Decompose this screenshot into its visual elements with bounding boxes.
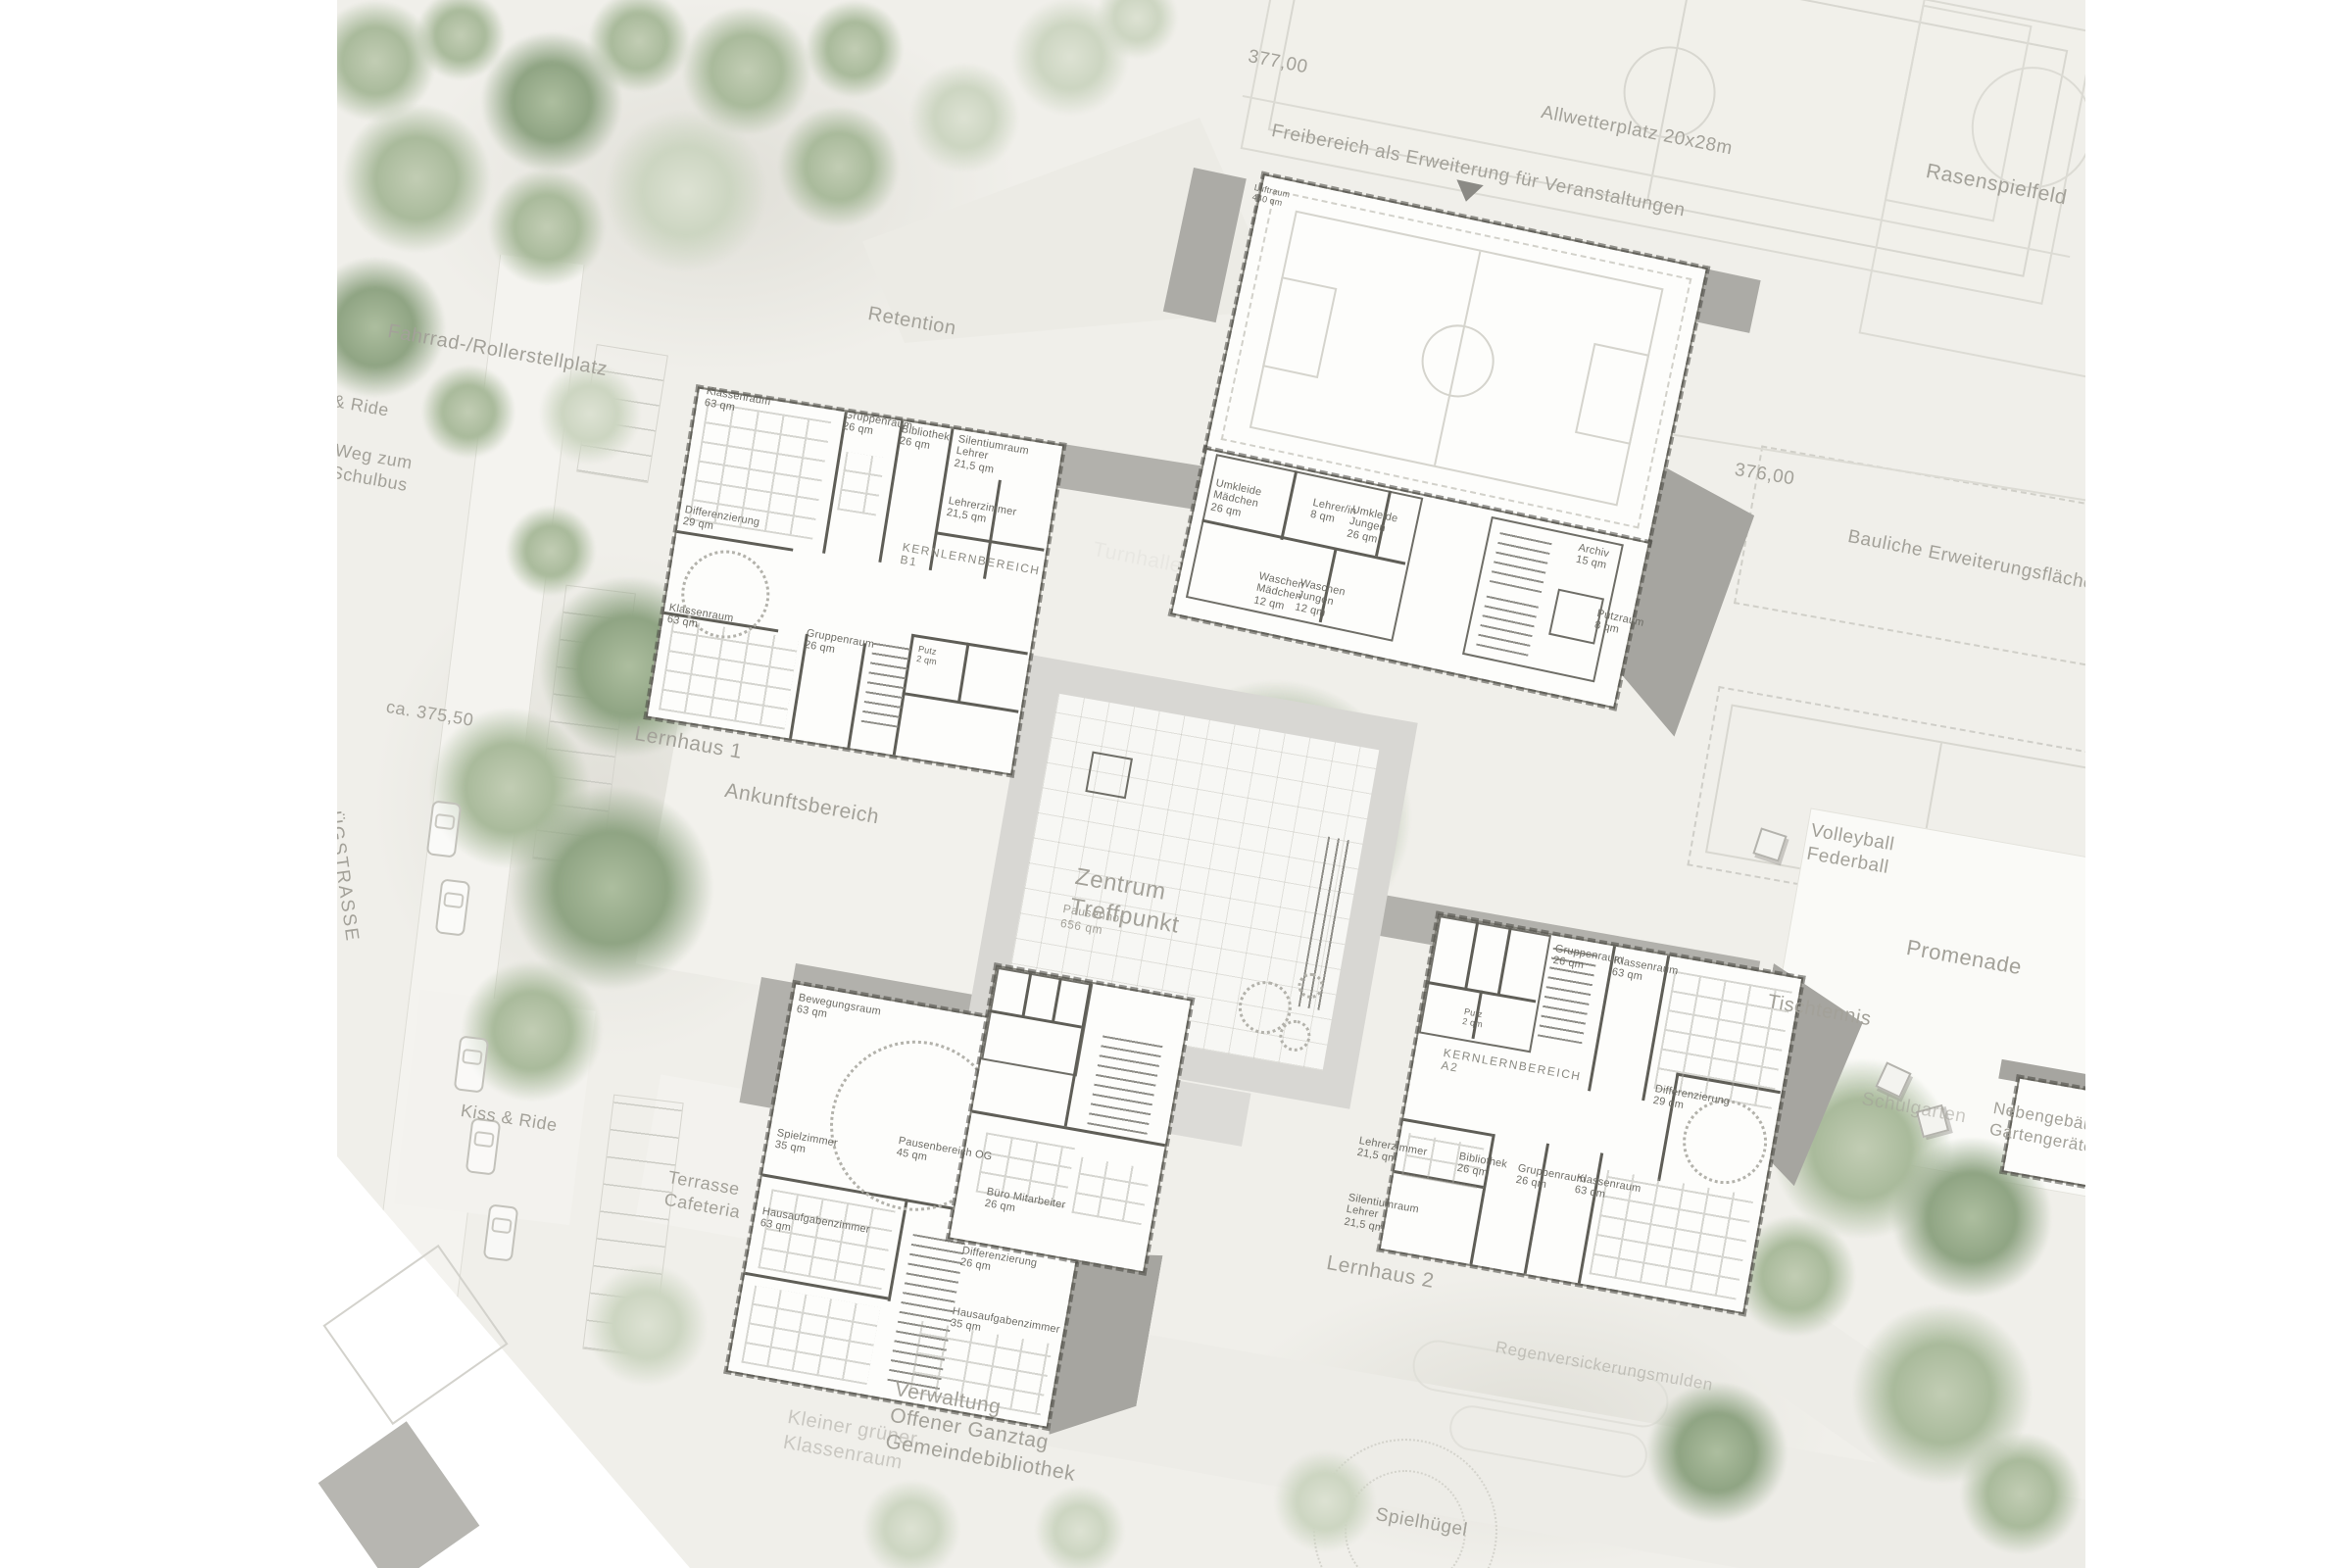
court-center-circle: [1415, 318, 1501, 404]
furniture-desks: [741, 1286, 880, 1385]
tree-canopy: [1274, 1450, 1376, 1552]
furniture-desks: [837, 452, 885, 516]
tree-canopy: [909, 63, 1019, 172]
tree-canopy: [806, 0, 904, 98]
tree-canopy: [1646, 1382, 1788, 1523]
tree-canopy: [510, 786, 713, 990]
site-plan-canvas: Fahrrad-/RollerstellplatzRetention377,00…: [0, 0, 2352, 1568]
tree-canopy: [778, 106, 900, 227]
tree-canopy: [606, 111, 766, 271]
room-label: Putz 2 qm: [1461, 1006, 1485, 1029]
tree-canopy: [506, 506, 596, 596]
tree-canopy: [1960, 1433, 2082, 1554]
page-margin-left: [0, 0, 337, 1568]
basketball-court: [1249, 211, 1664, 507]
page-margin-right: [2085, 0, 2352, 1568]
tree-canopy: [488, 169, 606, 286]
furniture-desks: [1071, 1157, 1151, 1226]
interior-wall: [957, 643, 970, 704]
room-label: Putz 2 qm: [915, 644, 939, 666]
tree-canopy: [421, 365, 515, 459]
staircase: [1087, 1030, 1163, 1135]
tree-canopy: [342, 104, 491, 253]
tree-canopy: [586, 1264, 708, 1386]
room-outline: [1085, 752, 1133, 800]
